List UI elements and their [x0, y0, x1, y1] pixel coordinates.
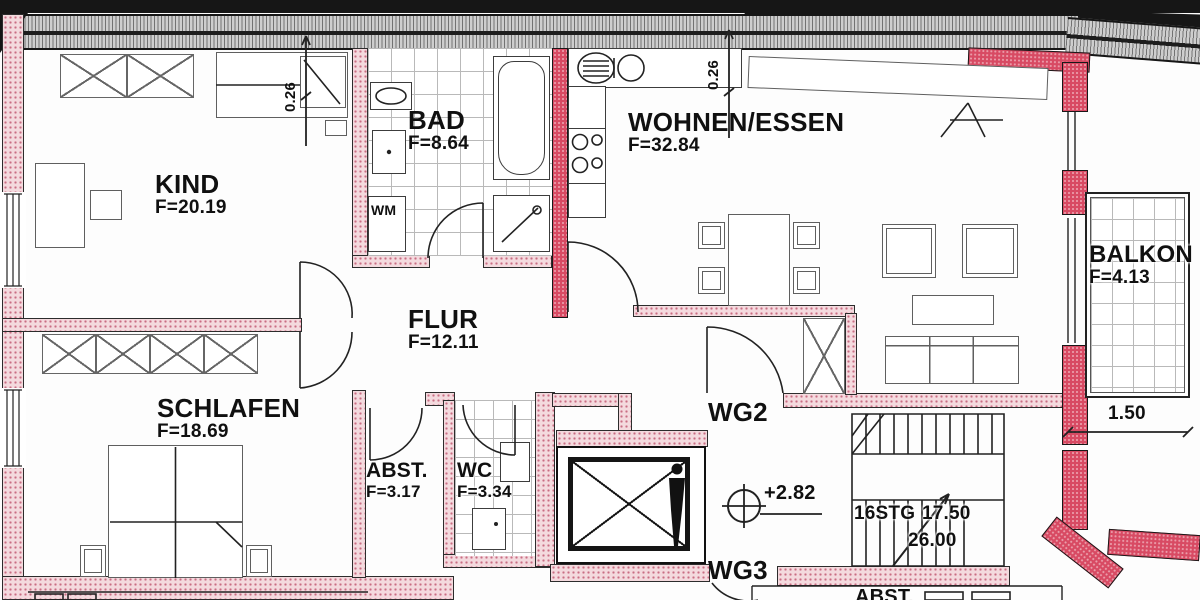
room-name-wc: WC: [457, 460, 512, 483]
room-name-flur: FLUR: [408, 305, 479, 333]
label-level: +2.82: [764, 483, 816, 505]
room-area-abst: F=3.17: [366, 483, 428, 501]
label-dim-wall-right: 0.26: [706, 26, 722, 90]
room-area-kind: F=20.19: [155, 198, 227, 219]
room-area-flur: F=12.11: [408, 333, 479, 354]
label-dim-wall-left: 0.26: [283, 48, 299, 112]
label-stairs-rise: 17.50: [922, 504, 971, 525]
room-area-schlafen: F=18.69: [157, 422, 300, 443]
room-label-wohnen: WOHNEN/ESSEN F=32.84: [628, 108, 844, 157]
label-dim-balcony: 1.50: [1108, 404, 1146, 425]
room-name-bad: BAD: [408, 106, 469, 134]
room-name-abst: ABST.: [366, 460, 428, 483]
label-stairs-steps: 16STG: [854, 504, 915, 525]
room-area-wohnen: F=32.84: [628, 136, 844, 157]
room-label-abst: ABST. F=3.17: [366, 460, 428, 501]
room-area-balkon: F=4.13: [1089, 268, 1193, 289]
label-wg2: WG2: [708, 398, 768, 426]
room-label-kind: KIND F=20.19: [155, 170, 227, 219]
room-label-abst-neighbor: ABST.: [855, 587, 914, 600]
floor-plan: KIND F=20.19 BAD F=8.64 WOHNEN/ESSEN F=3…: [0, 0, 1200, 600]
room-name-kind: KIND: [155, 170, 227, 198]
room-label-bad: BAD F=8.64: [408, 106, 469, 155]
label-wg3: WG3: [708, 556, 768, 584]
room-name-wohnen: WOHNEN/ESSEN: [628, 108, 844, 136]
room-label-balkon: BALKON F=4.13: [1089, 242, 1193, 288]
label-stairs-run: 26.00: [908, 531, 957, 552]
room-area-wc: F=3.34: [457, 483, 512, 501]
room-name-balkon: BALKON: [1089, 242, 1193, 268]
room-label-wc: WC F=3.34: [457, 460, 512, 501]
label-washing-machine: WM: [371, 203, 396, 218]
room-label-flur: FLUR F=12.11: [408, 305, 479, 354]
room-label-schlafen: SCHLAFEN F=18.69: [157, 394, 300, 443]
room-name-schlafen: SCHLAFEN: [157, 394, 300, 422]
room-area-bad: F=8.64: [408, 134, 469, 155]
plan-line-overlay: [0, 0, 1200, 600]
